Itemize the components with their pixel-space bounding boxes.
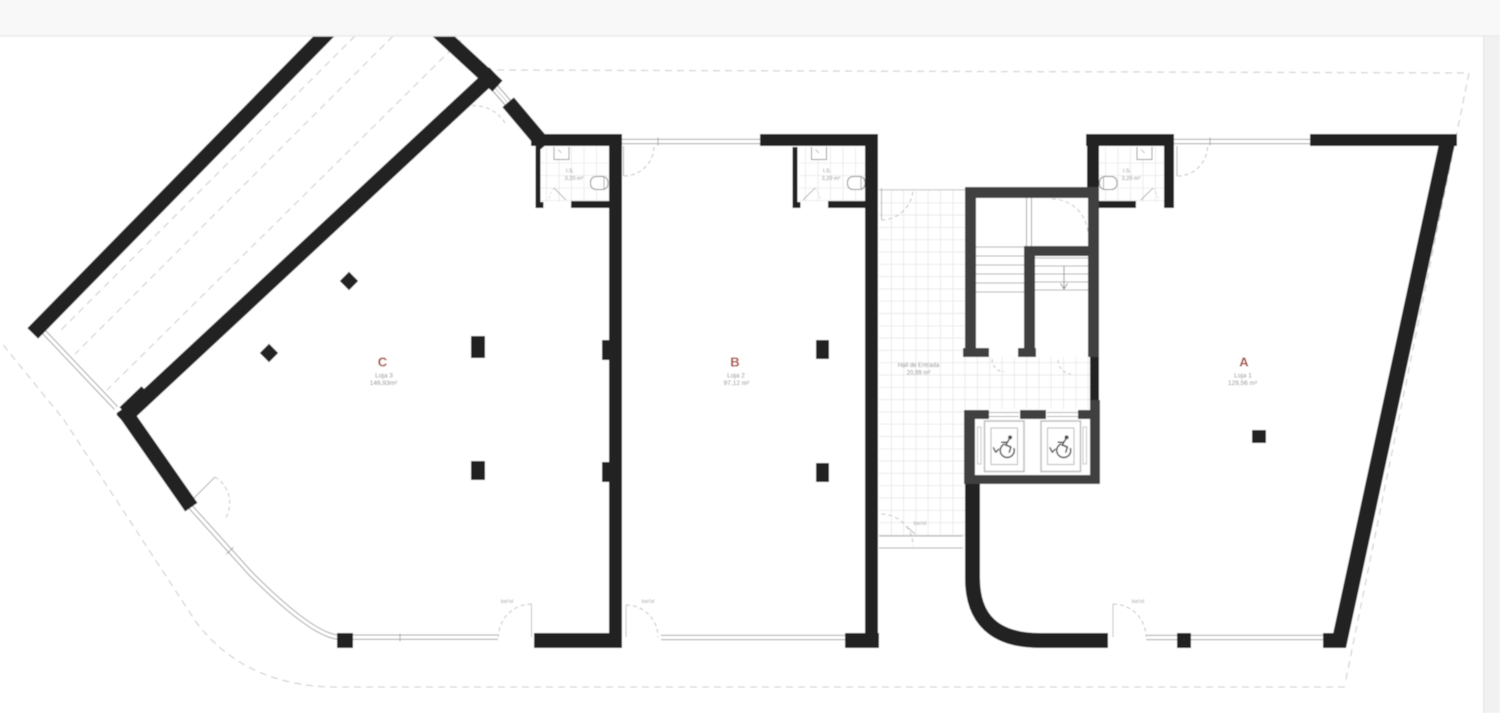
svg-text:I.S.: I.S. bbox=[566, 169, 575, 175]
svg-text:C: C bbox=[378, 355, 388, 370]
svg-text:129,56 m²: 129,56 m² bbox=[1228, 380, 1258, 387]
svg-text:I.S.: I.S. bbox=[1123, 169, 1132, 175]
svg-text:loo'ol: loo'ol bbox=[1132, 599, 1145, 605]
svg-text:B: B bbox=[730, 355, 739, 370]
svg-text:loo'ol: loo'ol bbox=[914, 521, 927, 527]
svg-text:Loja 3: Loja 3 bbox=[375, 373, 393, 380]
svg-text:3,20 m²: 3,20 m² bbox=[565, 176, 584, 182]
svg-text:I.S.: I.S. bbox=[823, 169, 832, 175]
svg-text:97,12 m²: 97,12 m² bbox=[724, 380, 750, 387]
svg-text:loo'ol: loo'ol bbox=[642, 599, 655, 605]
svg-text:20,99 m²: 20,99 m² bbox=[907, 371, 931, 377]
svg-text:Loja 2: Loja 2 bbox=[727, 373, 745, 380]
svg-text:3,20 m²: 3,20 m² bbox=[822, 176, 841, 182]
svg-text:146,93m²: 146,93m² bbox=[370, 380, 398, 387]
svg-text:3,20 m²: 3,20 m² bbox=[1122, 176, 1141, 182]
svg-text:Hall de Entrada: Hall de Entrada bbox=[898, 363, 940, 369]
svg-text:loo'ol: loo'ol bbox=[501, 599, 514, 605]
svg-text:A: A bbox=[1239, 355, 1249, 370]
svg-text:Loja 1: Loja 1 bbox=[1234, 373, 1252, 380]
